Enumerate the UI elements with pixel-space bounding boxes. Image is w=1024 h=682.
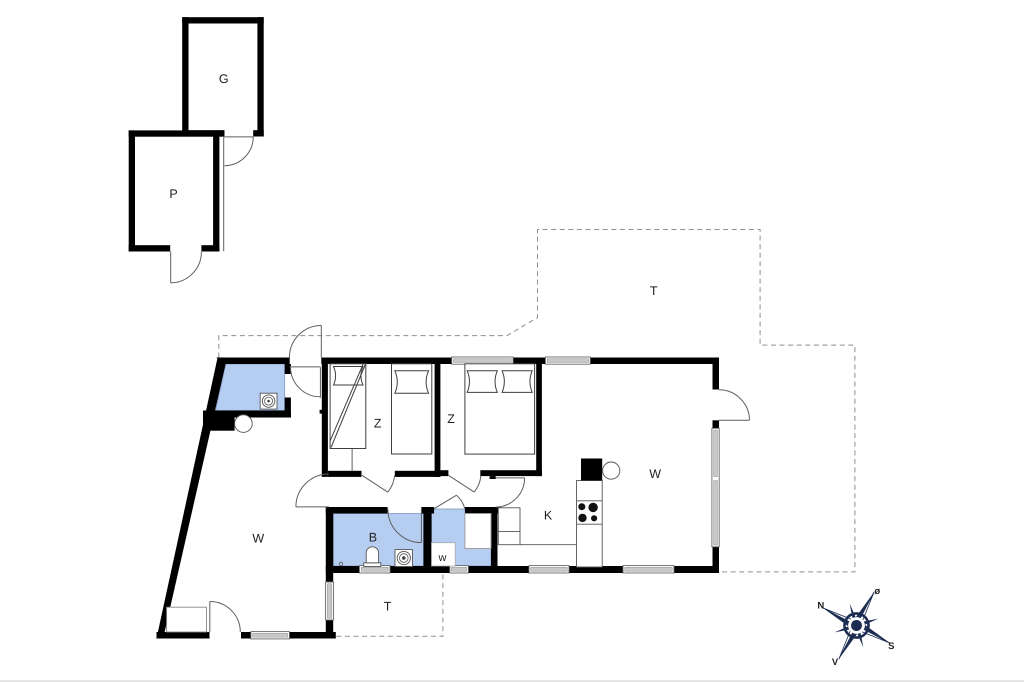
- svg-text:T: T: [650, 284, 658, 298]
- svg-text:T: T: [384, 600, 392, 614]
- svg-text:N: N: [817, 601, 824, 612]
- svg-text:W: W: [252, 531, 264, 545]
- svg-text:ø: ø: [874, 586, 880, 597]
- svg-text:S: S: [888, 641, 894, 652]
- svg-text:B: B: [369, 530, 377, 544]
- svg-text:K: K: [544, 509, 553, 523]
- svg-text:V: V: [832, 657, 839, 668]
- svg-text:P: P: [169, 187, 177, 201]
- svg-text:Z: Z: [374, 417, 382, 431]
- svg-text:w: w: [438, 552, 447, 564]
- svg-text:Z: Z: [447, 412, 455, 426]
- svg-text:W: W: [649, 467, 661, 481]
- svg-text:G: G: [219, 72, 229, 86]
